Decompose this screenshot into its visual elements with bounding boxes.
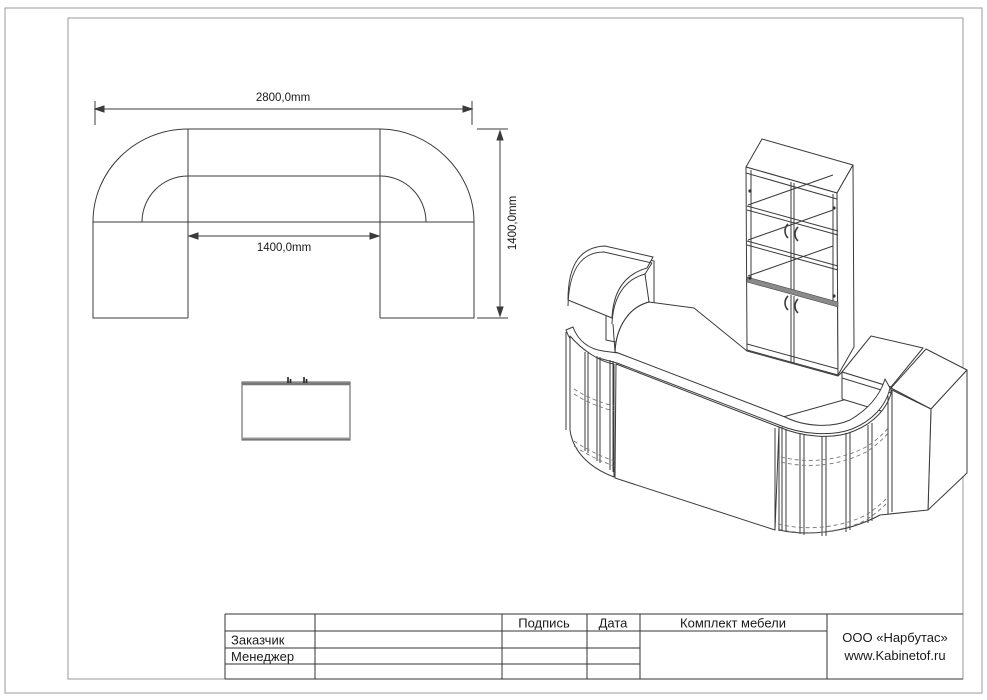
cabinet: [746, 139, 854, 375]
company-website: www.Kabinetof.ru: [843, 648, 945, 663]
dim-label-inner-width: 1400,0mm: [257, 242, 311, 254]
title-block: [225, 614, 963, 679]
iso-view: [566, 139, 967, 536]
front-view: [242, 377, 350, 440]
knob-icon: [832, 206, 835, 209]
dim-label-width: 2800,0mm: [256, 92, 310, 104]
dim-label-depth: 1400,0mm: [507, 196, 519, 250]
knob-icon: [832, 294, 835, 297]
arrow-up-icon: [497, 131, 503, 140]
arrow-right-icon: [463, 106, 472, 112]
dimension-width: [95, 101, 472, 125]
drawing-sheet: 2800,0mm 1400,0mm 1400,0mm: [0, 0, 987, 700]
arrow-right-icon: [370, 233, 379, 239]
cell-signature-header: Подпись: [518, 616, 570, 631]
cabinet-right-face: [837, 165, 854, 375]
dimension-depth: [477, 129, 508, 318]
cell-manager-label: Менеджер: [231, 649, 294, 664]
title-block-text: Подпись Дата Комплект мебели Заказчик Ме…: [231, 616, 948, 665]
plan-right-leg: [380, 222, 474, 318]
cell-set-header: Комплект мебели: [680, 616, 786, 631]
company-name: ООО «Нарбутас»: [842, 630, 947, 645]
cell-customer-label: Заказчик: [231, 633, 285, 648]
arrow-left-icon: [189, 233, 198, 239]
plan-inner-contour: [142, 176, 426, 222]
knob-icon: [748, 189, 751, 192]
dimension-inner-width: [189, 233, 379, 239]
cabinet-front-face: [746, 167, 838, 375]
plan-left-leg: [93, 222, 188, 318]
plan-view: [93, 129, 474, 318]
arrow-down-icon: [497, 307, 503, 316]
knob-icon: [748, 276, 751, 279]
cell-date-header: Дата: [599, 616, 629, 631]
arrow-left-icon: [95, 106, 104, 112]
